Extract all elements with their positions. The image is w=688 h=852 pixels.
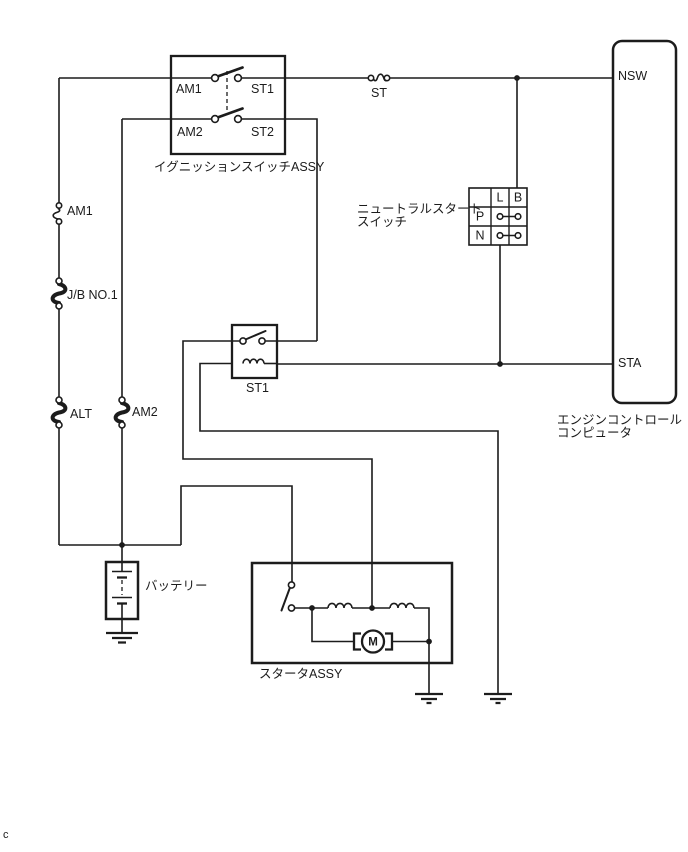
- ignition-switch-label: イグニッションスイッチASSY: [154, 161, 324, 174]
- battery-symbol: [106, 562, 138, 633]
- battery-label: バッテリー: [145, 580, 208, 593]
- fusible-link-am2-label: AM2: [132, 406, 158, 419]
- relay-coil-ground-wire: [200, 364, 498, 695]
- footer-char: c: [3, 829, 9, 842]
- ground-symbol-battery: [106, 633, 138, 643]
- motor-symbol: M: [354, 631, 392, 653]
- fusible-link-alt-label: ALT: [70, 408, 92, 421]
- nss-row-n-label: N: [475, 229, 484, 242]
- ground-symbol-relay-coil: [484, 694, 512, 703]
- st1-relay-label: ST1: [246, 382, 269, 395]
- fusible-link-jb-no1-label: J/B NO.1: [67, 289, 118, 302]
- ignition-terminal-am2-label: AM2: [177, 126, 203, 139]
- am1-fuse-symbol: [53, 203, 62, 224]
- ground-symbol-starter: [415, 694, 443, 703]
- st1-relay-box: [232, 325, 277, 378]
- starter-assy-label: スタータASSY: [259, 668, 342, 681]
- sta-wire: [264, 364, 613, 365]
- fuse-am1-label: AM1: [67, 205, 93, 218]
- motor-letter: M: [368, 637, 378, 649]
- nss-row-p-label: P: [476, 210, 484, 223]
- jb-no1-fusible-link-symbol: [53, 278, 66, 309]
- relay-to-starter-coil-wire: [183, 341, 372, 608]
- alt-fusible-link-symbol: [53, 397, 66, 428]
- ignition-terminal-st1-label: ST1: [251, 83, 274, 96]
- ecu-label-line2: コンピュータ: [557, 427, 632, 440]
- ecu-pin-nsw-label: NSW: [618, 70, 647, 83]
- battery-to-starter-switch-wire: [181, 486, 292, 585]
- ecu-pin-sta-label: STA: [618, 357, 641, 370]
- st-fuse-label: ST: [371, 87, 387, 100]
- st-fuse-symbol: [368, 74, 389, 81]
- ignition-terminal-am1-label: AM1: [176, 83, 202, 96]
- wiring-diagram: M AM1 ST1 AM2 ST2 イグニッションスイッチASSY ST NSW…: [0, 0, 688, 852]
- am2-fusible-link-symbol: [116, 397, 129, 428]
- ignition-switch-box: [171, 56, 285, 154]
- st2-to-relay-wire: [242, 119, 318, 341]
- ignition-terminal-st2-label: ST2: [251, 126, 274, 139]
- nss-column-l-label: L: [497, 191, 504, 204]
- neutral-start-switch-label-line2: スイッチ: [357, 216, 407, 229]
- engine-control-computer-box: [613, 41, 676, 403]
- nss-column-b-label: B: [514, 191, 522, 204]
